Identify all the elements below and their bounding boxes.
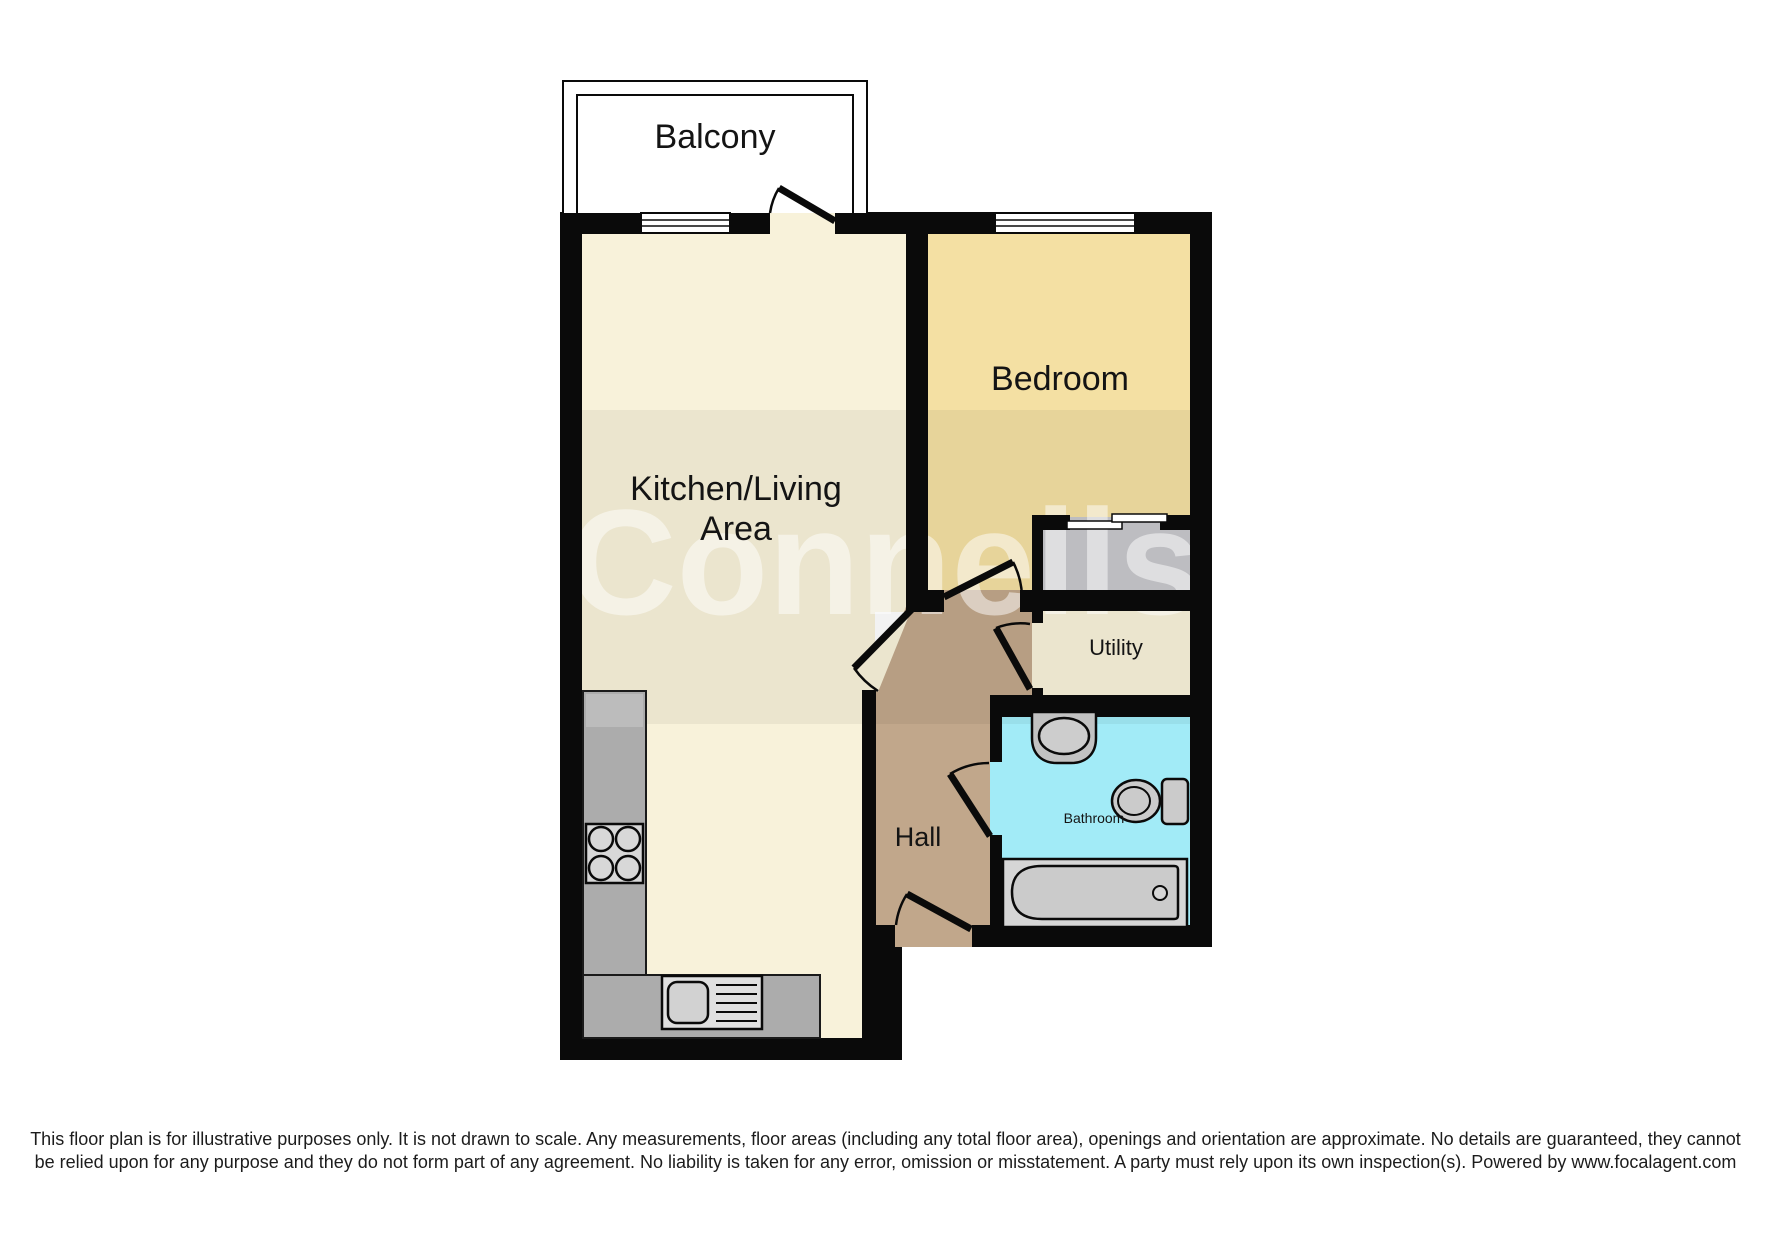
wall (990, 717, 1002, 762)
wall (928, 590, 944, 612)
kitchen-living-label-line2: Area (700, 510, 772, 548)
balcony-label: Balcony (655, 118, 776, 156)
bedroom-label: Bedroom (991, 360, 1129, 398)
kitchen-window-icon (641, 213, 730, 233)
bedroom-window-icon (995, 213, 1135, 233)
hob-icon (586, 824, 643, 883)
wall (1032, 590, 1043, 623)
wall (1032, 590, 1190, 611)
disclaimer-text: This floor plan is for illustrative purp… (24, 1128, 1748, 1174)
floor-plan: Connells (0, 0, 1771, 1240)
entrance-door-opening (895, 925, 972, 947)
wall (990, 835, 1002, 947)
bathroom-label: Bathroom (1064, 810, 1125, 826)
kitchen-living-label-line1: Kitchen/Living (630, 470, 842, 508)
wall (862, 690, 876, 925)
utility-label: Utility (1089, 635, 1143, 660)
hall-label: Hall (895, 822, 942, 852)
wall (1032, 515, 1043, 590)
wall (560, 212, 582, 1060)
wall (560, 1038, 902, 1060)
basin-icon (1032, 712, 1096, 763)
wall (1190, 212, 1212, 947)
kitchen-sink-icon (662, 976, 762, 1029)
wall (906, 234, 928, 612)
bathtub-icon (1003, 859, 1187, 927)
